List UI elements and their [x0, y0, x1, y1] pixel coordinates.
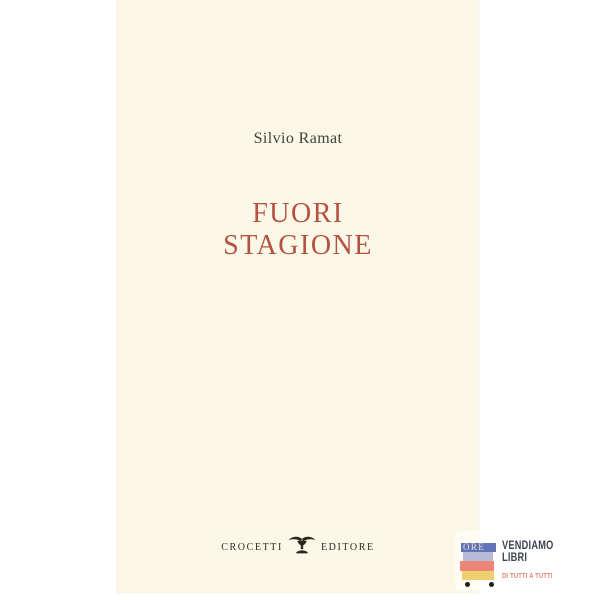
bookseller-badge: ORE VENDIAMO LIBRI DI TUTTI A TUTTI [455, 531, 565, 591]
book-title: FUORI STAGIONE [117, 198, 479, 262]
badge-brand-line2: LIBRI [502, 552, 554, 564]
cart-wheel-left [465, 582, 470, 587]
badge-brand-line1: VENDIAMO [502, 540, 554, 552]
winged-cup-icon [288, 533, 316, 554]
badge-tagline: DI TUTTI A TUTTI [502, 573, 555, 580]
book-cart-lavender-book [463, 552, 493, 561]
author-name: Silvio Ramat [117, 130, 479, 148]
book-cart-icon: ORE [460, 542, 500, 590]
publisher-name-left: CROCETTI [221, 542, 283, 553]
cart-wheel-right [489, 582, 494, 587]
book-cover: Silvio Ramat FUORI STAGIONE CROCETTI EDI [117, 0, 479, 593]
book-cart-salmon-book [460, 561, 494, 571]
covered-text-fragment: ORE [463, 543, 485, 552]
publisher-imprint: CROCETTI EDITORE [117, 533, 479, 554]
book-title-line2: STAGIONE [117, 230, 479, 262]
bookseller-badge-text: VENDIAMO LIBRI DI TUTTI A TUTTI [502, 540, 566, 580]
book-cart-blue-book: ORE [461, 543, 496, 552]
book-cover-image: Silvio Ramat FUORI STAGIONE CROCETTI EDI [0, 0, 600, 600]
book-title-line1: FUORI [117, 198, 479, 230]
book-cart-yellow-book [462, 571, 494, 580]
publisher-name-right: EDITORE [321, 542, 375, 553]
